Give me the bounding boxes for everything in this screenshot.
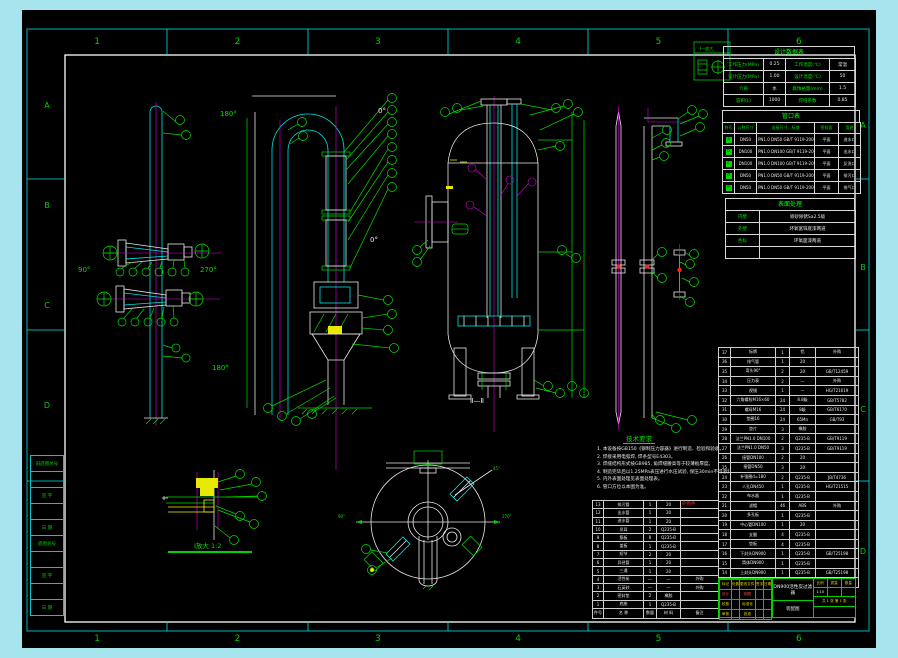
table-row: 21滤帽46ABS外购 — [719, 501, 859, 511]
table-cell: 接管DN100 — [731, 453, 776, 463]
table-cell: 20 — [790, 520, 816, 530]
table-cell: 色标 — [726, 235, 760, 247]
table-cell: DN100 — [735, 146, 757, 158]
table-cell: DN50 — [735, 182, 757, 194]
table-cell: PN1.0 DN100 GB/T 9119-2000 — [757, 146, 815, 158]
table-cell: 30 — [719, 415, 731, 425]
table-cell: 12 — [593, 509, 604, 517]
table-cell: — — [657, 583, 681, 591]
table-cell: 8级 — [790, 405, 816, 415]
table-row: 8盖板1Q235-B — [593, 542, 719, 550]
table-cell: 1 — [776, 568, 790, 578]
table-cell — [816, 491, 859, 501]
table-row: 工作压力(MPa)0.25工作温度(℃)常温 — [724, 59, 856, 71]
table-cell: Q235-B — [790, 482, 816, 492]
table-row: 35弯头90°220GB/T12459 — [719, 367, 859, 377]
table-row: 审核批准 — [720, 610, 772, 620]
table-cell: 4 — [776, 539, 790, 549]
title-block-blank — [814, 607, 855, 617]
table-cell: 密封面 — [815, 123, 839, 134]
table-cell: GB/T6170 — [816, 405, 859, 415]
table-cell: 27 — [719, 443, 731, 453]
table-row: eDN50PN1.0 DN50 GB/T 9119-2000平面排气口 — [723, 182, 861, 194]
note-line: 3. 焊缝结构形式按GB985, 角焊缝腰高等于较薄板厚度。 — [597, 461, 729, 469]
table-row: 28法兰PN1.0 DN1002Q235-BGB/T9119 — [719, 434, 859, 444]
table-row: 外壁环氧富锌底漆两道 — [726, 223, 856, 235]
table-cell: a — [723, 134, 735, 146]
zone-numbers-bottom: 123456 — [27, 630, 869, 647]
table-cell: Q235-B — [790, 568, 816, 578]
table-cell: GB/T25198 — [816, 568, 859, 578]
table-row: 7短节220 — [593, 550, 719, 558]
table-cell: 设计压力(MPa) — [724, 71, 764, 83]
bom-red-note: 外购件 — [682, 501, 696, 507]
table-cell: 18 — [719, 530, 731, 540]
design-data-table-title: 设计数据表 — [723, 46, 855, 58]
table-cell: 11 — [593, 517, 604, 525]
table-cell: 排污管 — [604, 501, 644, 509]
table-cell: 铝 — [790, 348, 816, 358]
table-cell: 排气管 — [731, 357, 776, 367]
table-row: 20多孔板1Q235-B — [719, 511, 859, 521]
strip-cell: 旧底图总号 — [30, 455, 64, 472]
angle-label-270: 270° — [200, 266, 217, 274]
zone-number: 2 — [235, 634, 241, 644]
table-cell: 3 — [776, 424, 790, 434]
sheet-count: 共 1 张 第 1 张 — [814, 597, 855, 607]
table-cell: 备注 — [681, 608, 719, 618]
table-cell — [816, 357, 859, 367]
table-cell: PN1.0 DN100 GB/T 9119-2000 — [757, 158, 815, 170]
bom-bottom: 13排污管12012出水管12011进水管12010吊耳2Q235-B9筋板8Q… — [592, 500, 718, 619]
table-cell: 外购 — [681, 575, 719, 583]
table-cell — [816, 424, 859, 434]
view-elevation-90-270 — [97, 102, 222, 426]
nozzle-symbol: b — [726, 149, 732, 155]
table-cell — [816, 539, 859, 549]
table-cell: 公称尺寸 — [735, 123, 757, 134]
angle-label-0-top: 0° — [378, 107, 386, 115]
title-block-label: 数量 — [842, 579, 855, 587]
nozzle-symbol: e — [726, 185, 732, 191]
table-cell: 50 — [830, 71, 856, 83]
table-cell — [816, 463, 859, 473]
table-row: 18支腿4Q235-B — [719, 530, 859, 540]
table-cell: 46 — [776, 501, 790, 511]
bom-right: 37标牌1铝外购36排气管12035弯头90°220GB/T1245934压力表… — [718, 347, 858, 588]
table-cell: 8 — [593, 542, 604, 550]
table-cell — [732, 590, 740, 600]
table-cell: 1 — [776, 559, 790, 569]
cad-drawing-page: { "frame": { "zones_h": ["1","2","3","4"… — [0, 0, 898, 658]
table-cell: 橡胶 — [790, 424, 816, 434]
table-cell: 9 — [593, 534, 604, 542]
table-cell: 中心管DN100 — [731, 520, 776, 530]
table-cell: 进水口 — [839, 134, 861, 146]
table-cell: 29 — [719, 424, 731, 434]
surface-grid: 内壁喷砂除锈Sa2.5级外壁环氧富锌底漆两道色标环氧面漆两道 — [725, 210, 856, 259]
table-cell — [816, 511, 859, 521]
table-cell: DN100 — [735, 158, 757, 170]
zone-number: 4 — [515, 37, 521, 47]
table-cell: 异径管 — [604, 559, 644, 567]
table-cell: 21 — [719, 501, 731, 511]
table-cell: 3 — [593, 583, 604, 591]
table-cell: 环氧富锌底漆两道 — [760, 223, 856, 235]
table-cell — [816, 453, 859, 463]
table-cell: ABS — [790, 501, 816, 511]
table-cell: 布水器 — [731, 491, 776, 501]
table-cell: 平面 — [815, 170, 839, 182]
table-cell: 盖板 — [604, 542, 644, 550]
table-row: 36排气管120 — [719, 357, 859, 367]
table-cell: 20 — [657, 501, 681, 509]
title-block-value — [828, 588, 842, 596]
table-cell: 平面 — [815, 182, 839, 194]
table-cell: 标牌 — [731, 348, 776, 358]
table-cell — [681, 559, 719, 567]
table-cell: 垫圈16 — [731, 415, 776, 425]
table-row: 2密封垫2橡胶 — [593, 592, 719, 600]
table-cell: GB/T25198 — [816, 549, 859, 559]
zone-letter: C — [44, 301, 50, 310]
table-cell: 1 — [776, 520, 790, 530]
table-cell: 1 — [644, 501, 657, 509]
table-cell: 多孔板 — [731, 511, 776, 521]
table-cell: 进水管 — [604, 517, 644, 525]
bom-bottom-grid: 13排污管12012出水管12011进水管12010吊耳2Q235-B9筋板8Q… — [592, 500, 719, 619]
table-cell: 24 — [776, 415, 790, 425]
table-cell: Q235-B — [657, 542, 681, 550]
title-block-signature-grid: 标记处数更改文件号签字日期设计制图校核标准化审核批准 — [719, 579, 772, 620]
table-cell: 36 — [719, 357, 731, 367]
zone-number: 2 — [235, 37, 241, 47]
table-cell: 件号 — [593, 608, 604, 618]
table-cell: 0.85 — [830, 95, 856, 107]
table-cell: 2 — [644, 525, 657, 533]
table-cell: 1 — [644, 567, 657, 575]
table-cell: 滤帽 — [731, 501, 776, 511]
table-cell: 上封头DN900 — [731, 568, 776, 578]
table-row: aDN50PN1.0 DN50 GB/T 9119-2000平面进水口 — [723, 134, 861, 146]
note-line: 2. 焊接采用电弧焊, 焊条型号E4303。 — [597, 454, 729, 462]
table-row: 色标环氧面漆两道 — [726, 235, 856, 247]
table-cell: Q235-B — [790, 511, 816, 521]
table-cell: 压力表 — [731, 376, 776, 386]
table-cell: 法兰PN1.0 DN50 — [731, 443, 776, 453]
table-cell: 垫板 — [731, 539, 776, 549]
table-cell: 34 — [719, 376, 731, 386]
angle-label-180-top: 180° — [220, 110, 237, 118]
table-cell: 24 — [776, 405, 790, 415]
strip-cell: 底图总号 — [30, 536, 64, 552]
table-cell: 名 称 — [604, 608, 644, 618]
table-cell: 31 — [719, 405, 731, 415]
table-cell: 处数 — [732, 580, 740, 590]
strip-cell — [30, 472, 64, 488]
angle-label-180-bottom: 180° — [212, 364, 229, 372]
zone-letter: B — [44, 201, 50, 210]
table-row: 29垫片3橡胶 — [719, 424, 859, 434]
table-cell: 批准 — [740, 610, 756, 620]
table-cell: 水 — [764, 83, 786, 95]
table-cell: PN1.0 DN50 GB/T 9119-2000 — [757, 134, 815, 146]
table-cell: 反洗口 — [839, 158, 861, 170]
table-cell: 25 — [719, 463, 731, 473]
table-cell: c — [723, 158, 735, 170]
table-cell: 螺母M16 — [731, 405, 776, 415]
table-cell: 1 — [593, 600, 604, 608]
table-row: 22布水器1Q235-B — [719, 491, 859, 501]
table-cell: 2 — [776, 376, 790, 386]
nozzle-table-title: 管口表 — [722, 110, 860, 122]
table-row: 23人孔DN4501Q235-BHG/T21515 — [719, 482, 859, 492]
angle-label-90: 90° — [78, 266, 90, 274]
title-block-value — [842, 588, 855, 596]
table-row: 容积(L)1000焊缝系数0.85 — [724, 95, 856, 107]
zone-number: 5 — [656, 634, 662, 644]
table-cell: HG/T21515 — [816, 482, 859, 492]
table-cell: 支腿 — [731, 530, 776, 540]
note-line: 1. 本设备按GB150《钢制压力容器》进行制造、检验和验收。 — [597, 446, 729, 454]
table-cell: GB/T9119 — [816, 434, 859, 444]
table-cell: 容积(L) — [724, 95, 764, 107]
table-cell: GB/T12459 — [816, 367, 859, 377]
table-cell: 工作温度(℃) — [786, 59, 830, 71]
table-cell — [756, 590, 764, 600]
table-cell: 1.5 — [830, 83, 856, 95]
table-cell: PN1.0 DN50 GB/T 9119-2000 — [757, 182, 815, 194]
zone-number: 3 — [375, 37, 381, 47]
table-row: 15筒体DN9001Q235-B — [719, 559, 859, 569]
table-cell: 数量 — [644, 608, 657, 618]
drawing-type: 装配图 — [773, 601, 813, 617]
table-cell — [681, 525, 719, 533]
table-cell: 20 — [790, 463, 816, 473]
table-cell: — — [790, 376, 816, 386]
table-cell — [726, 247, 760, 259]
zone-number: 5 — [656, 37, 662, 47]
strip-cell: 签 字 — [30, 488, 64, 504]
zone-letters-left: ABCD — [42, 55, 52, 455]
table-cell: 20 — [790, 357, 816, 367]
table-cell: 1 — [776, 491, 790, 501]
table-cell: 4 — [776, 530, 790, 540]
table-cell: DN50 — [735, 134, 757, 146]
table-cell: 内壁 — [726, 211, 760, 223]
table-cell: Q235-B — [657, 534, 681, 542]
plan-270-label: 270° — [502, 514, 512, 519]
table-cell: 喷砂除锈Sa2.5级 — [760, 211, 856, 223]
table-cell: 工作压力(MPa) — [724, 59, 764, 71]
table-cell: 平面 — [815, 158, 839, 170]
table-cell: GB/T9119 — [816, 443, 859, 453]
table-cell: 补强圈d=180 — [731, 472, 776, 482]
nozzle-symbol: d — [726, 173, 732, 179]
table-cell: 1 — [776, 386, 790, 396]
table-header-row: 件号名 称数量材 料备注 — [593, 608, 719, 618]
strip-cell: 签 字 — [30, 568, 64, 584]
table-row: 3石英砂——外购 — [593, 583, 719, 591]
table-cell: 法兰PN1.0 DN100 — [731, 434, 776, 444]
table-row: 33视镜1—HG/T21619 — [719, 386, 859, 396]
table-cell: 签字 — [756, 580, 764, 590]
bom-right-grid: 37标牌1铝外购36排气管12035弯头90°220GB/T1245934压力表… — [718, 347, 859, 588]
table-cell: 1 — [644, 517, 657, 525]
table-cell: 1 — [776, 482, 790, 492]
table-cell: 20 — [657, 509, 681, 517]
table-cell: 1 — [644, 509, 657, 517]
zone-number: 4 — [515, 634, 521, 644]
table-cell: 标记 — [720, 580, 732, 590]
table-cell: 1 — [776, 511, 790, 521]
table-cell — [764, 600, 772, 610]
table-cell: 校核 — [720, 600, 732, 610]
zone-letter: C — [860, 405, 866, 414]
title-block-label: 比例 — [814, 579, 828, 587]
table-cell: 2 — [644, 592, 657, 600]
table-row — [726, 247, 856, 259]
table-row: cDN100PN1.0 DN100 GB/T 9119-2000平面反洗口 — [723, 158, 861, 170]
table-row: 13排污管120 — [593, 501, 719, 509]
table-cell: 32 — [719, 395, 731, 405]
table-header-row: 符号公称尺寸连接尺寸、标准密封面用途 — [723, 123, 861, 134]
table-cell: 35 — [719, 367, 731, 377]
table-row: 5三通120 — [593, 567, 719, 575]
table-cell: 短节 — [604, 550, 644, 558]
table-cell — [681, 534, 719, 542]
nozzle-symbol: c — [726, 161, 732, 167]
table-cell: 腐蚀裕量(mm) — [786, 83, 830, 95]
table-cell: 密封垫 — [604, 592, 644, 600]
view-elevation-gooseneck — [247, 94, 399, 471]
zone-letter: D — [44, 401, 50, 410]
table-cell: — — [657, 575, 681, 583]
table-row: 25接管DN50320 — [719, 463, 859, 473]
view-side-slim — [612, 106, 708, 433]
nozzle-symbol: a — [726, 137, 732, 143]
table-cell — [681, 509, 719, 517]
table-cell: 1 — [776, 549, 790, 559]
table-cell: 20 — [657, 517, 681, 525]
table-cell: Q235-B — [657, 600, 681, 608]
table-cell: — — [790, 386, 816, 396]
strip-cell — [30, 552, 64, 568]
table-row: 9筋板8Q235-B — [593, 534, 719, 542]
table-cell: 标准化 — [740, 600, 756, 610]
table-row: 12出水管120 — [593, 509, 719, 517]
table-cell: 2 — [593, 592, 604, 600]
design-data-grid: 工作压力(MPa)0.25工作温度(℃)常温设计压力(MPa)1.00设计温度(… — [723, 58, 856, 107]
table-cell: 焊缝系数 — [786, 95, 830, 107]
section-label: Ⅱ—Ⅱ — [470, 397, 484, 405]
zone-letter: D — [860, 547, 866, 556]
table-cell: 外购 — [681, 583, 719, 591]
table-row: 4活性炭——外购 — [593, 575, 719, 583]
zone-letter: A — [44, 101, 49, 110]
nozzle-grid: 符号公称尺寸连接尺寸、标准密封面用途aDN50PN1.0 DN50 GB/T 9… — [722, 122, 861, 194]
table-row: 标记处数更改文件号签字日期 — [720, 580, 772, 590]
table-cell: 3 — [776, 463, 790, 473]
table-cell: Q235-B — [790, 491, 816, 501]
strip-cell — [30, 504, 64, 520]
table-cell: 垫片 — [731, 424, 776, 434]
table-cell: 外购 — [816, 348, 859, 358]
plan-90-label: 90° — [338, 514, 345, 519]
table-cell: 37 — [719, 348, 731, 358]
table-cell: 环氧面漆两道 — [760, 235, 856, 247]
surface-table-title: 表面处理 — [725, 198, 855, 210]
table-cell: DN50 — [735, 170, 757, 182]
table-cell: 19 — [719, 520, 731, 530]
table-cell: 审核 — [720, 610, 732, 620]
table-cell: 1 — [644, 559, 657, 567]
table-row: 30垫圈162465MnGB/T93 — [719, 415, 859, 425]
table-cell: 接管DN50 — [731, 463, 776, 473]
table-cell — [732, 610, 740, 620]
table-row: 14上封头DN9001Q235-BGB/T25198 — [719, 568, 859, 578]
table-row: bDN100PN1.0 DN100 GB/T 9119-2000平面出水口 — [723, 146, 861, 158]
table-cell: 外购 — [816, 501, 859, 511]
table-cell — [681, 592, 719, 600]
table-row: 34压力表2—外购 — [719, 376, 859, 386]
table-cell: 1 — [776, 348, 790, 358]
table-cell: 常温 — [830, 59, 856, 71]
table-row: 6异径管120 — [593, 559, 719, 567]
table-cell: — — [644, 575, 657, 583]
table-row: 内壁喷砂除锈Sa2.5级 — [726, 211, 856, 223]
view-plan-bottom — [356, 451, 500, 590]
design-data-table: 设计数据表 工作压力(MPa)0.25工作温度(℃)常温设计压力(MPa)1.0… — [723, 46, 855, 107]
table-cell: 20 — [657, 559, 681, 567]
table-cell: 20 — [657, 550, 681, 558]
table-cell: 1.00 — [764, 71, 786, 83]
zone-number: 6 — [796, 634, 802, 644]
nozzle-table: 管口表 符号公称尺寸连接尺寸、标准密封面用途aDN50PN1.0 DN50 GB… — [722, 110, 860, 194]
table-cell: 8 — [644, 534, 657, 542]
table-cell: GB/T93 — [816, 415, 859, 425]
table-cell: 28 — [719, 434, 731, 444]
table-row: 设计压力(MPa)1.00设计温度(℃)50 — [724, 71, 856, 83]
technical-notes: 技术要求 1. 本设备按GB150《钢制压力容器》进行制造、检验和验收。2. 焊… — [597, 426, 729, 492]
table-cell: 0.25 — [764, 59, 786, 71]
angle-label-0-mid: 0° — [370, 236, 378, 244]
table-cell: 出水口 — [839, 146, 861, 158]
table-cell: JB/T4736 — [816, 472, 859, 482]
view-detail-enlarged — [162, 470, 267, 554]
table-cell — [816, 559, 859, 569]
table-cell: 更改文件号 — [740, 580, 756, 590]
table-cell — [816, 520, 859, 530]
table-cell: Q235-B — [790, 530, 816, 540]
table-cell: 活性炭 — [604, 575, 644, 583]
table-cell: Q235-B — [790, 434, 816, 444]
table-cell: 20 — [657, 567, 681, 575]
table-cell: 筒体DN900 — [731, 559, 776, 569]
margin-signature-strip: 旧底图总号签 字日 期底图总号签 字日 期 — [30, 455, 64, 616]
strip-cell: 日 期 — [30, 600, 64, 616]
table-cell: 24 — [719, 472, 731, 482]
table-row: 校核标准化 — [720, 600, 772, 610]
table-cell — [681, 517, 719, 525]
table-cell: 3 — [776, 443, 790, 453]
table-row: 32六角螺栓M16×60248.8级GB/T5782 — [719, 395, 859, 405]
table-cell: 2 — [776, 434, 790, 444]
table-row: 24补强圈d=1802Q235-BJB/T4736 — [719, 472, 859, 482]
table-cell: PN1.0 DN50 GB/T 9119-2000 — [757, 170, 815, 182]
zone-number: 3 — [375, 634, 381, 644]
table-cell: 20 — [790, 453, 816, 463]
